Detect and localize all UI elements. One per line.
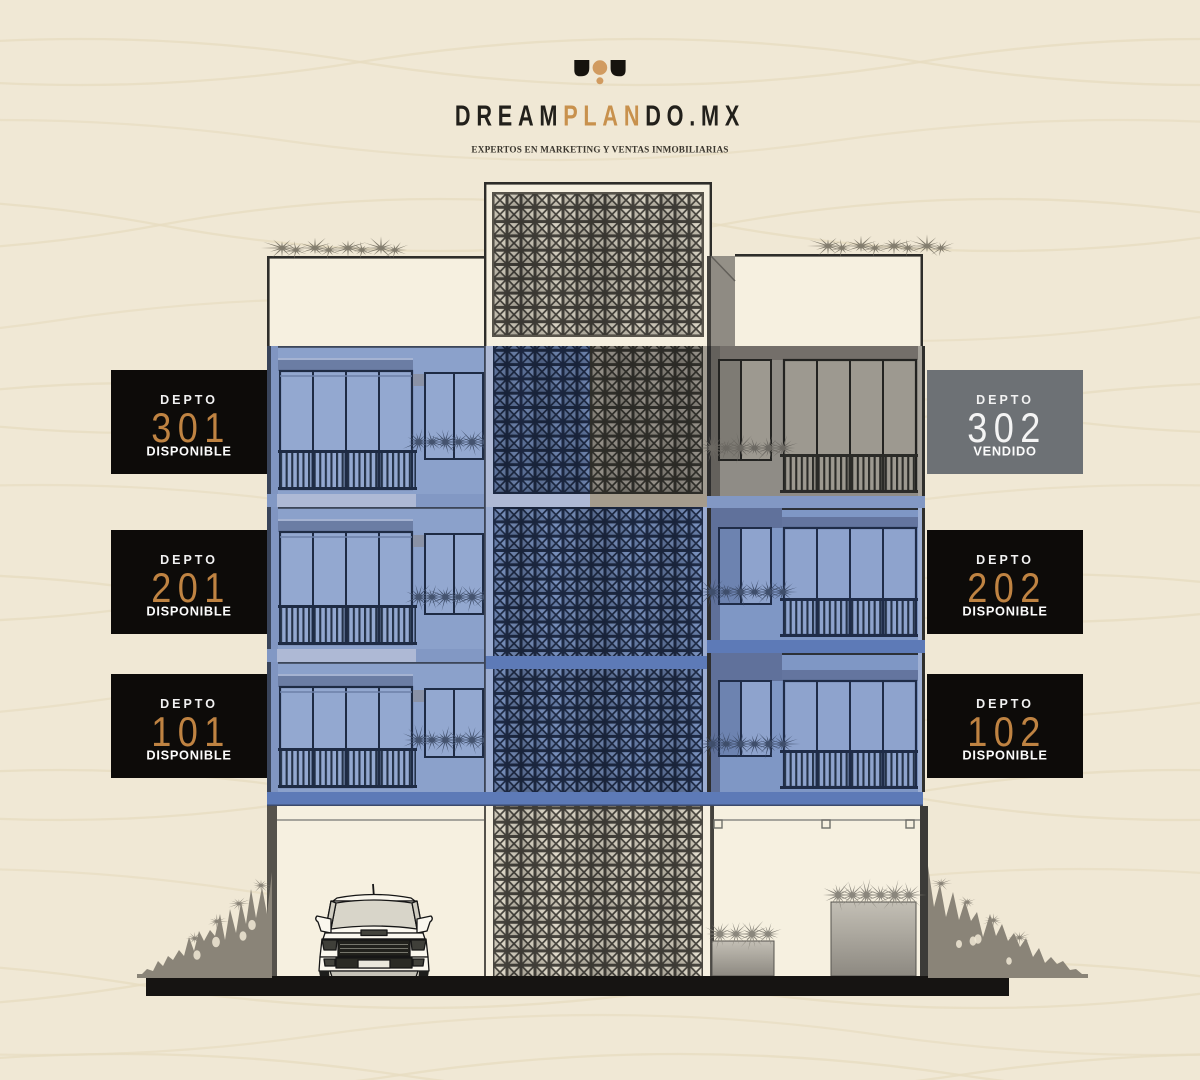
svg-text:DISPONIBLE: DISPONIBLE (146, 748, 231, 763)
svg-text:DISPONIBLE: DISPONIBLE (962, 604, 1047, 619)
svg-text:DISPONIBLE: DISPONIBLE (962, 748, 1047, 763)
svg-text:DREAMPLANDO.MX: DREAMPLANDO.MX (455, 101, 745, 133)
svg-text:VENDIDO: VENDIDO (973, 444, 1036, 459)
svg-text:DISPONIBLE: DISPONIBLE (146, 444, 231, 459)
svg-text:DISPONIBLE: DISPONIBLE (146, 604, 231, 619)
svg-text:EXPERTOS EN MARKETING Y VENTAS: EXPERTOS EN MARKETING Y VENTAS INMOBILIA… (471, 145, 728, 155)
